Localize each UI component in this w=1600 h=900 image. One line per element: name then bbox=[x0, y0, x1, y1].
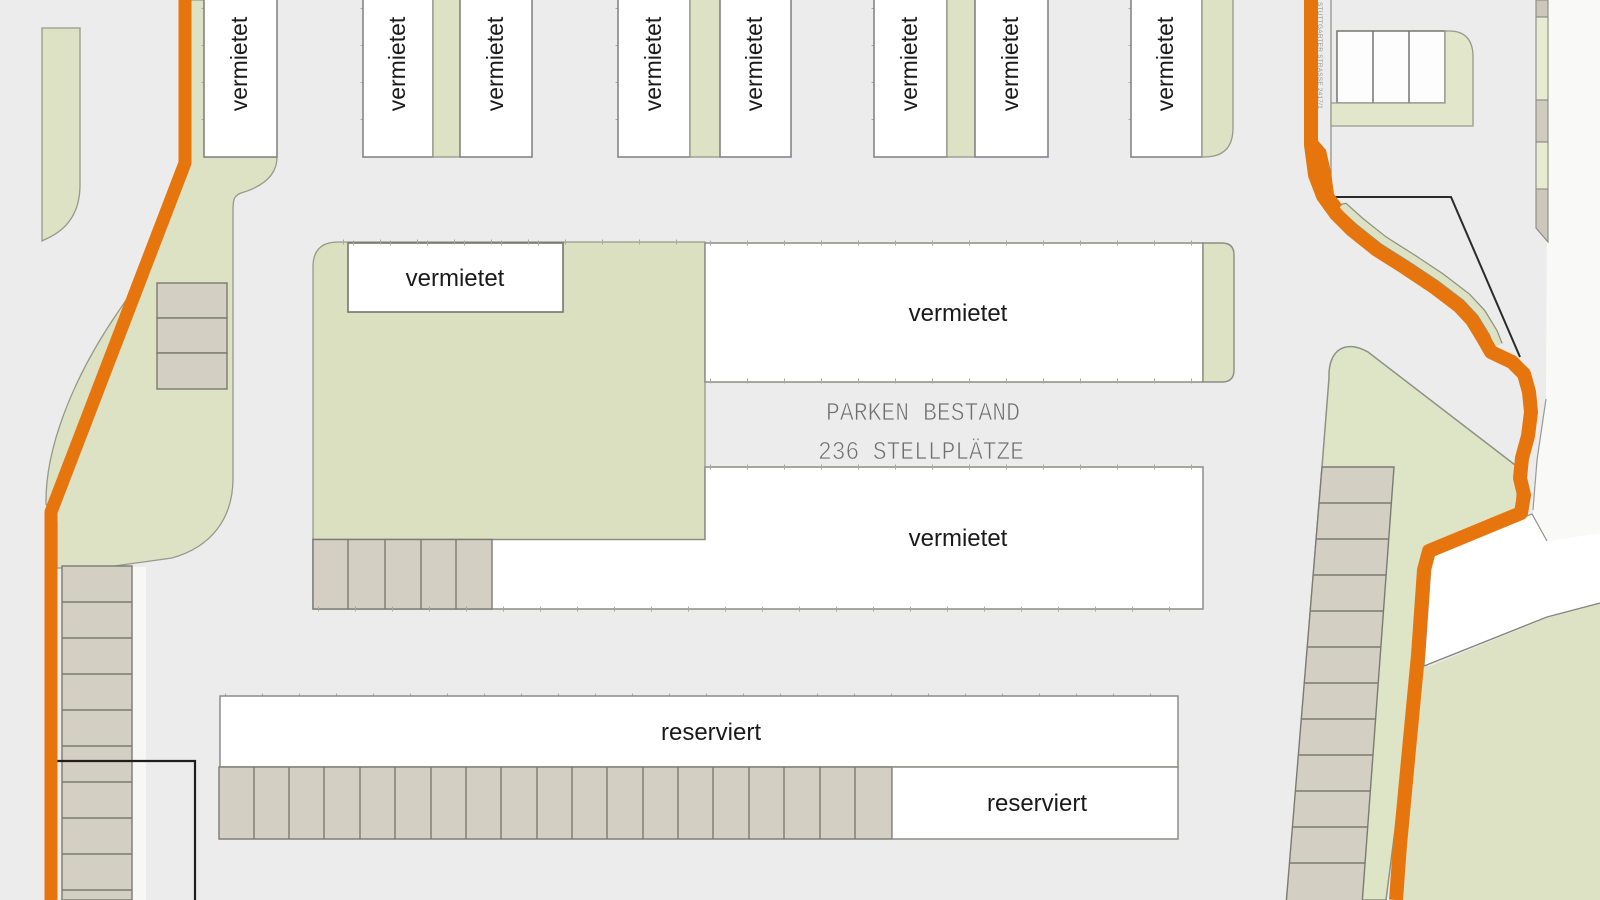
svg-text:vermietet: vermietet bbox=[384, 16, 410, 111]
svg-text:vermietet: vermietet bbox=[640, 16, 666, 111]
svg-text:vermietet: vermietet bbox=[226, 16, 252, 111]
svg-text:vermietet: vermietet bbox=[997, 16, 1023, 111]
svg-text:vermietet: vermietet bbox=[1152, 16, 1178, 111]
svg-text:vermietet: vermietet bbox=[909, 300, 1008, 327]
svg-text:236 STELLPLÄTZE: 236 STELLPLÄTZE bbox=[818, 438, 1024, 467]
svg-text:vermietet: vermietet bbox=[909, 525, 1008, 552]
svg-text:vermietet: vermietet bbox=[741, 16, 767, 111]
svg-text:vermietet: vermietet bbox=[896, 16, 922, 111]
svg-text:reserviert: reserviert bbox=[661, 719, 761, 746]
svg-text:vermietet: vermietet bbox=[482, 16, 508, 111]
svg-text:reserviert: reserviert bbox=[987, 790, 1087, 817]
svg-text:PARKEN BESTAND: PARKEN BESTAND bbox=[826, 399, 1020, 428]
svg-text:vermietet: vermietet bbox=[406, 265, 505, 292]
svg-text:STUTTGARTER STRASSE 2417/1: STUTTGARTER STRASSE 2417/1 bbox=[1316, 2, 1323, 109]
